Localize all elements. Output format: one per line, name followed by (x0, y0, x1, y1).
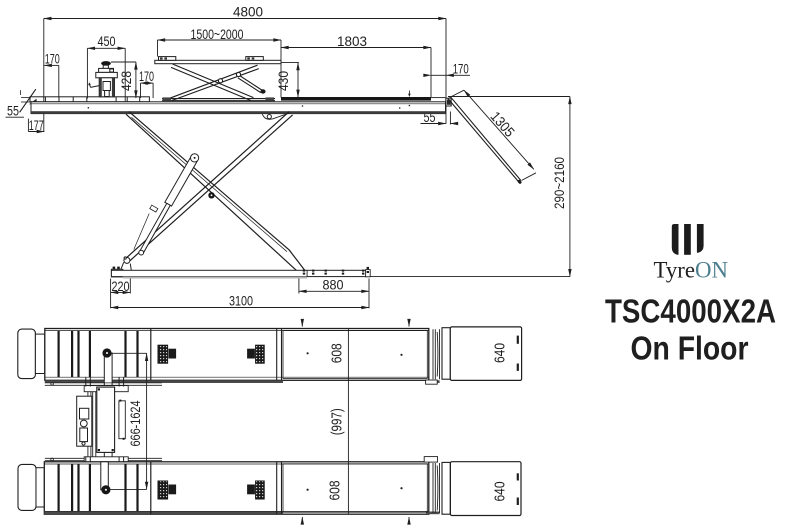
svg-text:(997): (997) (330, 408, 346, 435)
svg-text:290~2160: 290~2160 (551, 157, 567, 209)
svg-text:170: 170 (45, 51, 60, 67)
svg-text:170: 170 (453, 60, 469, 76)
svg-text:1803: 1803 (337, 33, 367, 49)
svg-text:430: 430 (275, 71, 291, 91)
svg-text:55: 55 (7, 103, 19, 119)
svg-text:177: 177 (29, 117, 44, 133)
svg-text:3100: 3100 (229, 293, 253, 309)
svg-text:170: 170 (139, 68, 154, 84)
svg-text:1305: 1305 (488, 108, 519, 140)
svg-text:TSC4000X2A: TSC4000X2A (605, 294, 776, 331)
svg-text:880: 880 (323, 277, 344, 293)
svg-text:TyreON: TyreON (654, 258, 729, 283)
svg-text:4800: 4800 (233, 4, 263, 20)
svg-text:428: 428 (118, 71, 134, 91)
svg-text:608: 608 (330, 343, 346, 363)
svg-text:450: 450 (98, 33, 116, 49)
svg-text:1500~2000: 1500~2000 (191, 26, 244, 42)
svg-text:666-1624: 666-1624 (127, 400, 143, 446)
svg-text:640: 640 (493, 482, 509, 502)
svg-text:608: 608 (328, 481, 344, 501)
svg-text:640: 640 (493, 343, 509, 363)
svg-text:On Floor: On Floor (631, 331, 749, 368)
svg-text:220: 220 (112, 278, 130, 294)
